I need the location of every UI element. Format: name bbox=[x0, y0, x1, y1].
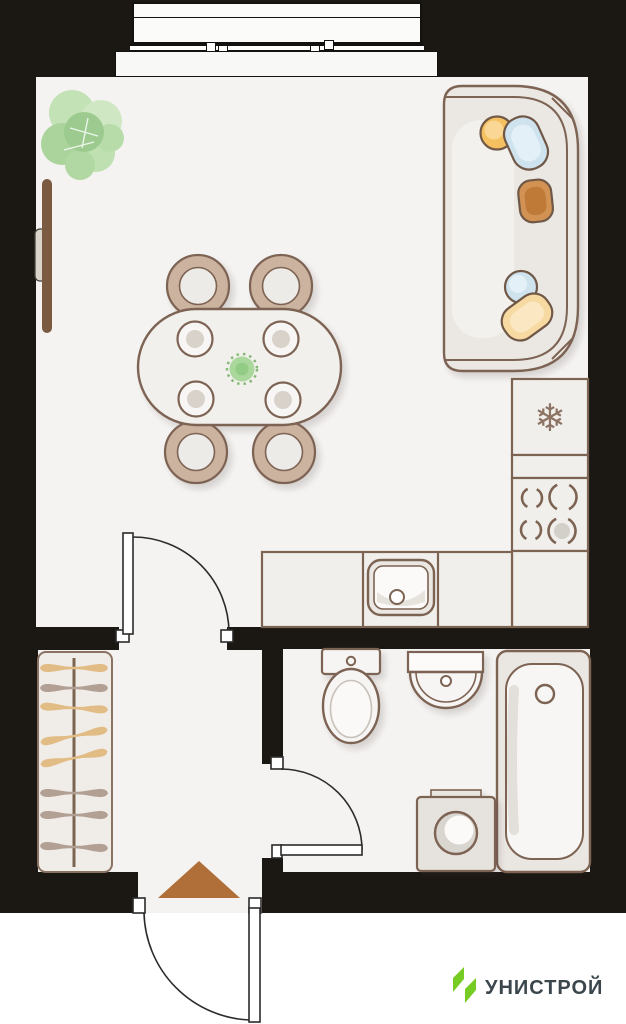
chair-icon bbox=[167, 255, 229, 317]
chair-icon bbox=[165, 421, 227, 483]
floor-plan-canvas: ❄ bbox=[0, 0, 626, 1024]
plate-icon bbox=[264, 322, 299, 357]
kitchen-cabinet bbox=[512, 455, 588, 478]
kitchen-counter bbox=[262, 552, 512, 627]
kitchen-sink-icon bbox=[368, 560, 434, 615]
tv-icon bbox=[35, 179, 52, 333]
door-leaf bbox=[249, 908, 260, 1022]
stove bbox=[512, 478, 588, 551]
sofa-icon bbox=[444, 86, 578, 371]
developer-logo: УНИСТРОЙ bbox=[452, 962, 622, 1008]
interior-door-bathroom bbox=[271, 757, 362, 858]
toilet-icon bbox=[322, 649, 380, 743]
chair-icon bbox=[253, 421, 315, 483]
chair-icon bbox=[250, 255, 312, 317]
houseplant-icon bbox=[41, 90, 124, 180]
kitchen-base-cabinet bbox=[512, 551, 588, 627]
door-leaf bbox=[123, 533, 133, 634]
washing-machine-icon bbox=[417, 790, 495, 871]
plate-icon bbox=[179, 382, 214, 417]
kitchen-column: ❄ bbox=[512, 379, 588, 627]
snowflake-icon: ❄ bbox=[534, 396, 566, 440]
wardrobe bbox=[38, 652, 112, 872]
washbasin-icon bbox=[408, 652, 483, 708]
door-swing-arc bbox=[133, 537, 229, 633]
plate-icon bbox=[178, 322, 213, 357]
door-frame bbox=[221, 630, 233, 642]
furniture-layer: ❄ bbox=[0, 0, 626, 1024]
logo-text: УНИСТРОЙ bbox=[485, 972, 603, 998]
entrance-door bbox=[133, 898, 261, 1022]
plate-icon bbox=[266, 383, 301, 418]
door-frame bbox=[271, 757, 283, 769]
door-leaf bbox=[281, 845, 362, 855]
pillow-rust-icon bbox=[517, 178, 554, 223]
entrance-arrow-icon bbox=[158, 861, 240, 898]
dining-group bbox=[138, 255, 341, 483]
bathtub-icon bbox=[497, 651, 590, 872]
door-frame bbox=[133, 898, 145, 913]
door-swing-arc bbox=[281, 769, 362, 850]
logo-leaves-icon bbox=[452, 966, 478, 1004]
interior-door-living bbox=[116, 533, 233, 642]
door-swing-arc bbox=[144, 913, 250, 1020]
